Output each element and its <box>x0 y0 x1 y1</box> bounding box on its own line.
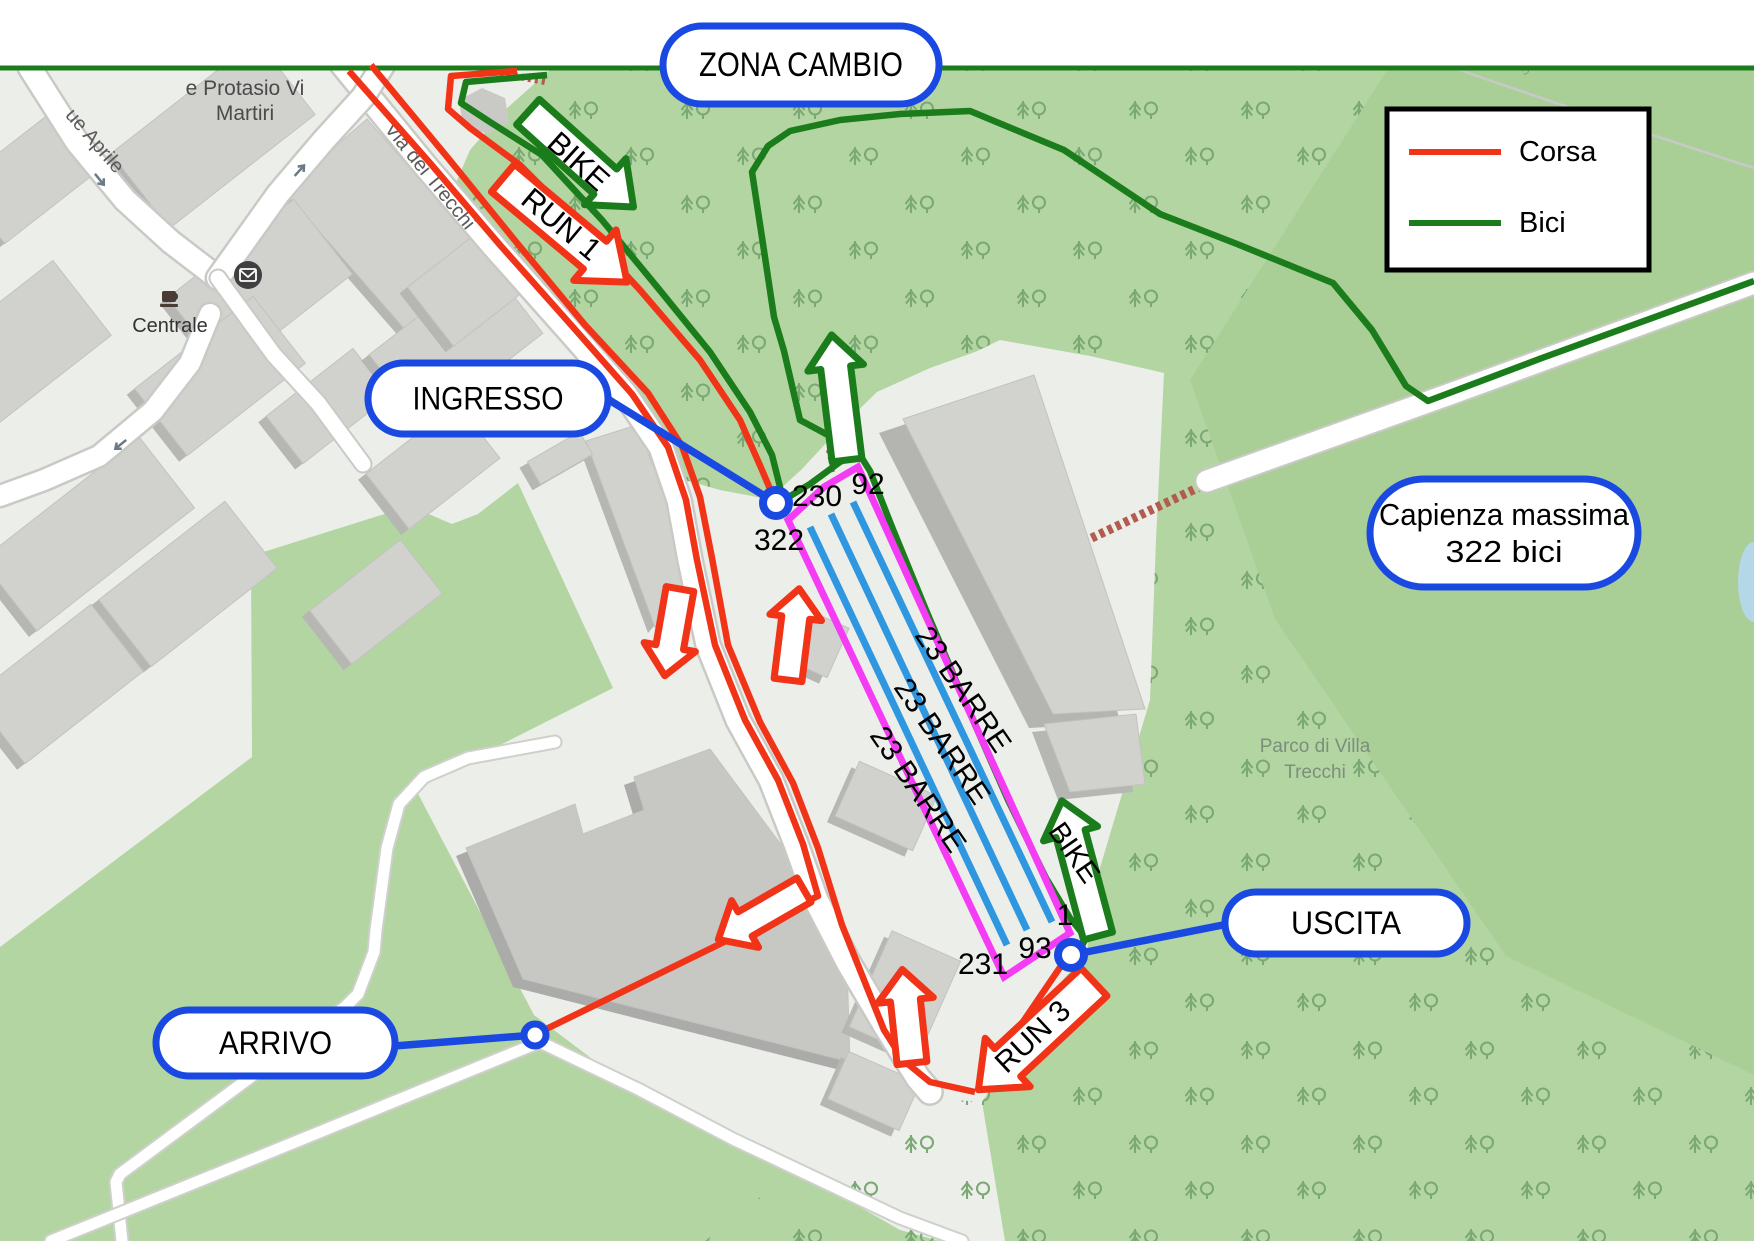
svg-text:ZONA CAMBIO: ZONA CAMBIO <box>699 46 903 84</box>
svg-text:USCITA: USCITA <box>1291 905 1402 941</box>
svg-text:93: 93 <box>1018 932 1051 965</box>
svg-text:ARRIVO: ARRIVO <box>219 1025 332 1061</box>
svg-text:INGRESSO: INGRESSO <box>413 381 564 417</box>
svg-text:Trecchi: Trecchi <box>1284 762 1346 783</box>
svg-text:230: 230 <box>792 480 842 513</box>
svg-text:Bici: Bici <box>1519 207 1566 239</box>
svg-text:322: 322 <box>754 524 804 557</box>
svg-text:Centrale: Centrale <box>132 315 208 337</box>
svg-text:231: 231 <box>958 948 1008 981</box>
svg-text:Capienza massima: Capienza massima <box>1379 497 1630 532</box>
svg-text:92: 92 <box>851 468 884 501</box>
svg-text:Martiri: Martiri <box>216 102 274 125</box>
svg-text:e Protasio Vi: e Protasio Vi <box>186 77 305 100</box>
svg-text:1: 1 <box>1057 899 1074 932</box>
svg-text:Corsa: Corsa <box>1519 136 1597 168</box>
svg-text:Parco di Villa: Parco di Villa <box>1260 736 1371 757</box>
svg-text:322 bici: 322 bici <box>1446 534 1563 569</box>
